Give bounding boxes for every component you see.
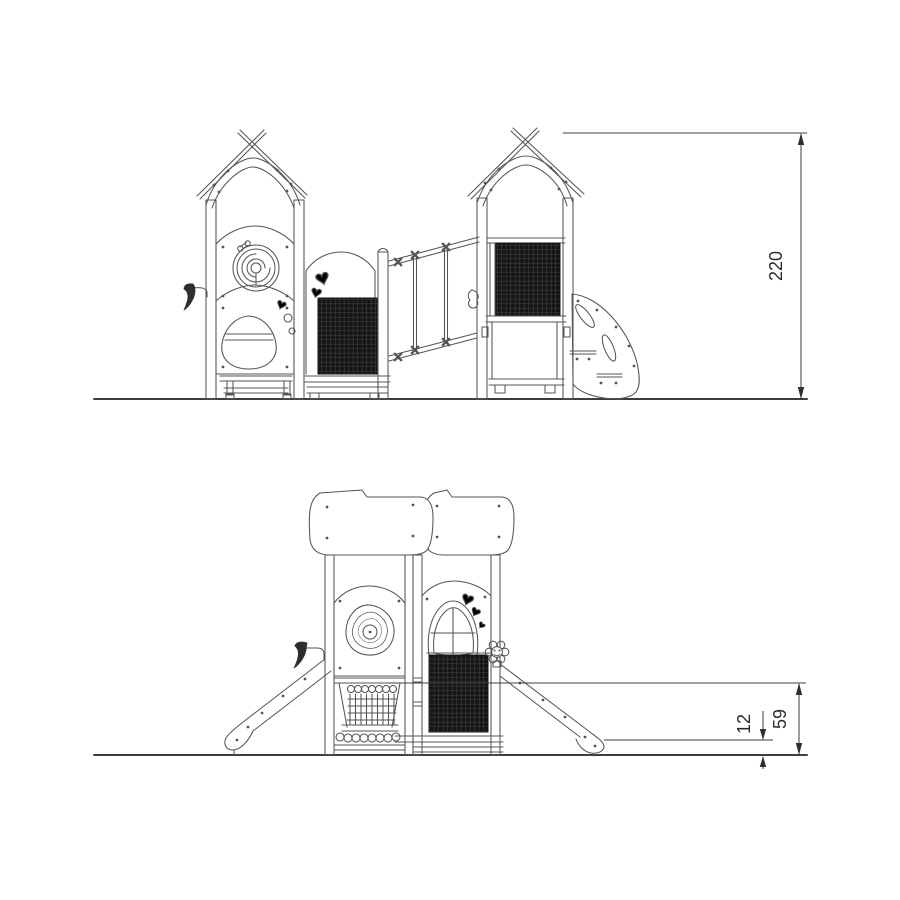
climbing-net-panel	[429, 655, 488, 732]
side-elevation-view	[94, 128, 807, 399]
left-tower-side	[184, 130, 307, 399]
lower-boards	[395, 736, 503, 752]
post-rung	[413, 702, 422, 706]
slide-side-panel	[570, 294, 639, 399]
arrow-up	[760, 756, 766, 767]
maze-game	[233, 245, 279, 291]
flag-handle	[184, 284, 207, 310]
left-slide	[225, 659, 331, 755]
tower-post	[206, 200, 216, 399]
flag	[294, 642, 307, 668]
right-tower-side	[468, 128, 584, 399]
window-panel	[216, 300, 295, 374]
arrow-up	[798, 133, 804, 145]
steering-wheel	[485, 641, 509, 667]
flag	[184, 284, 195, 310]
platform-height-value: 59	[770, 709, 790, 729]
tower-post	[405, 555, 413, 755]
handhold-cutout	[573, 302, 597, 330]
blob-window	[222, 316, 276, 369]
post-rung	[413, 678, 422, 682]
heart-cutout	[477, 621, 486, 629]
heart-cutout	[315, 272, 330, 286]
left-tower-front	[334, 586, 405, 750]
heart-cutout	[276, 300, 287, 310]
rope-bridge	[389, 237, 479, 361]
arrow-down	[760, 729, 766, 740]
climbing-net-panel	[318, 298, 378, 374]
right-roof-front	[423, 490, 514, 555]
arrow-down	[796, 743, 802, 755]
arch-window	[428, 601, 478, 658]
tower-post	[563, 198, 573, 399]
drawing-page: 220	[0, 0, 900, 900]
overall-height-dimension: 220	[563, 133, 807, 399]
lower-panel	[489, 322, 564, 393]
platform	[305, 376, 390, 399]
maze-panel	[216, 226, 294, 301]
playground-technical-drawing: 220	[0, 0, 900, 900]
rope-basket	[334, 678, 405, 742]
slide-exit-height-value: 12	[734, 714, 754, 734]
heart-cutout	[311, 288, 322, 298]
tower-post	[477, 198, 487, 399]
front-elevation-view	[94, 490, 807, 756]
tower-post	[413, 555, 422, 755]
handhold-cutout	[600, 333, 619, 362]
flag-handle	[294, 642, 324, 668]
overall-height-value: 220	[766, 251, 786, 281]
bench	[220, 376, 292, 399]
slide-exit-height-dimension: 12	[604, 711, 773, 769]
tower-post	[294, 200, 304, 399]
right-slide	[500, 664, 604, 756]
climbing-net-section	[305, 249, 390, 400]
tower-post	[325, 555, 334, 755]
left-roof-front	[309, 490, 433, 555]
swirl-window	[346, 605, 394, 655]
climbing-net-panel	[496, 243, 560, 316]
pitched-roof	[197, 130, 307, 208]
right-tower-front	[395, 581, 509, 752]
bridge-post	[378, 252, 388, 399]
pitched-roof	[468, 128, 584, 206]
arrow-up	[796, 683, 802, 695]
arrow-down	[798, 387, 804, 399]
